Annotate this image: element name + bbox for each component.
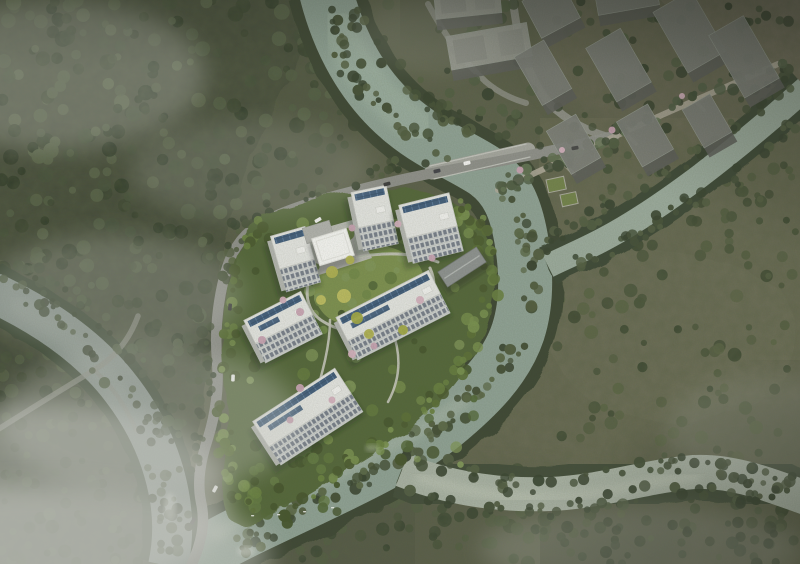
- scene-svg: [0, 0, 800, 564]
- vignette-bottom-right: [540, 360, 800, 564]
- aerial-rendering: [0, 0, 800, 564]
- fog-patch: [0, 345, 300, 495]
- vignette-top: [0, 0, 800, 70]
- fog-patch: [130, 120, 370, 220]
